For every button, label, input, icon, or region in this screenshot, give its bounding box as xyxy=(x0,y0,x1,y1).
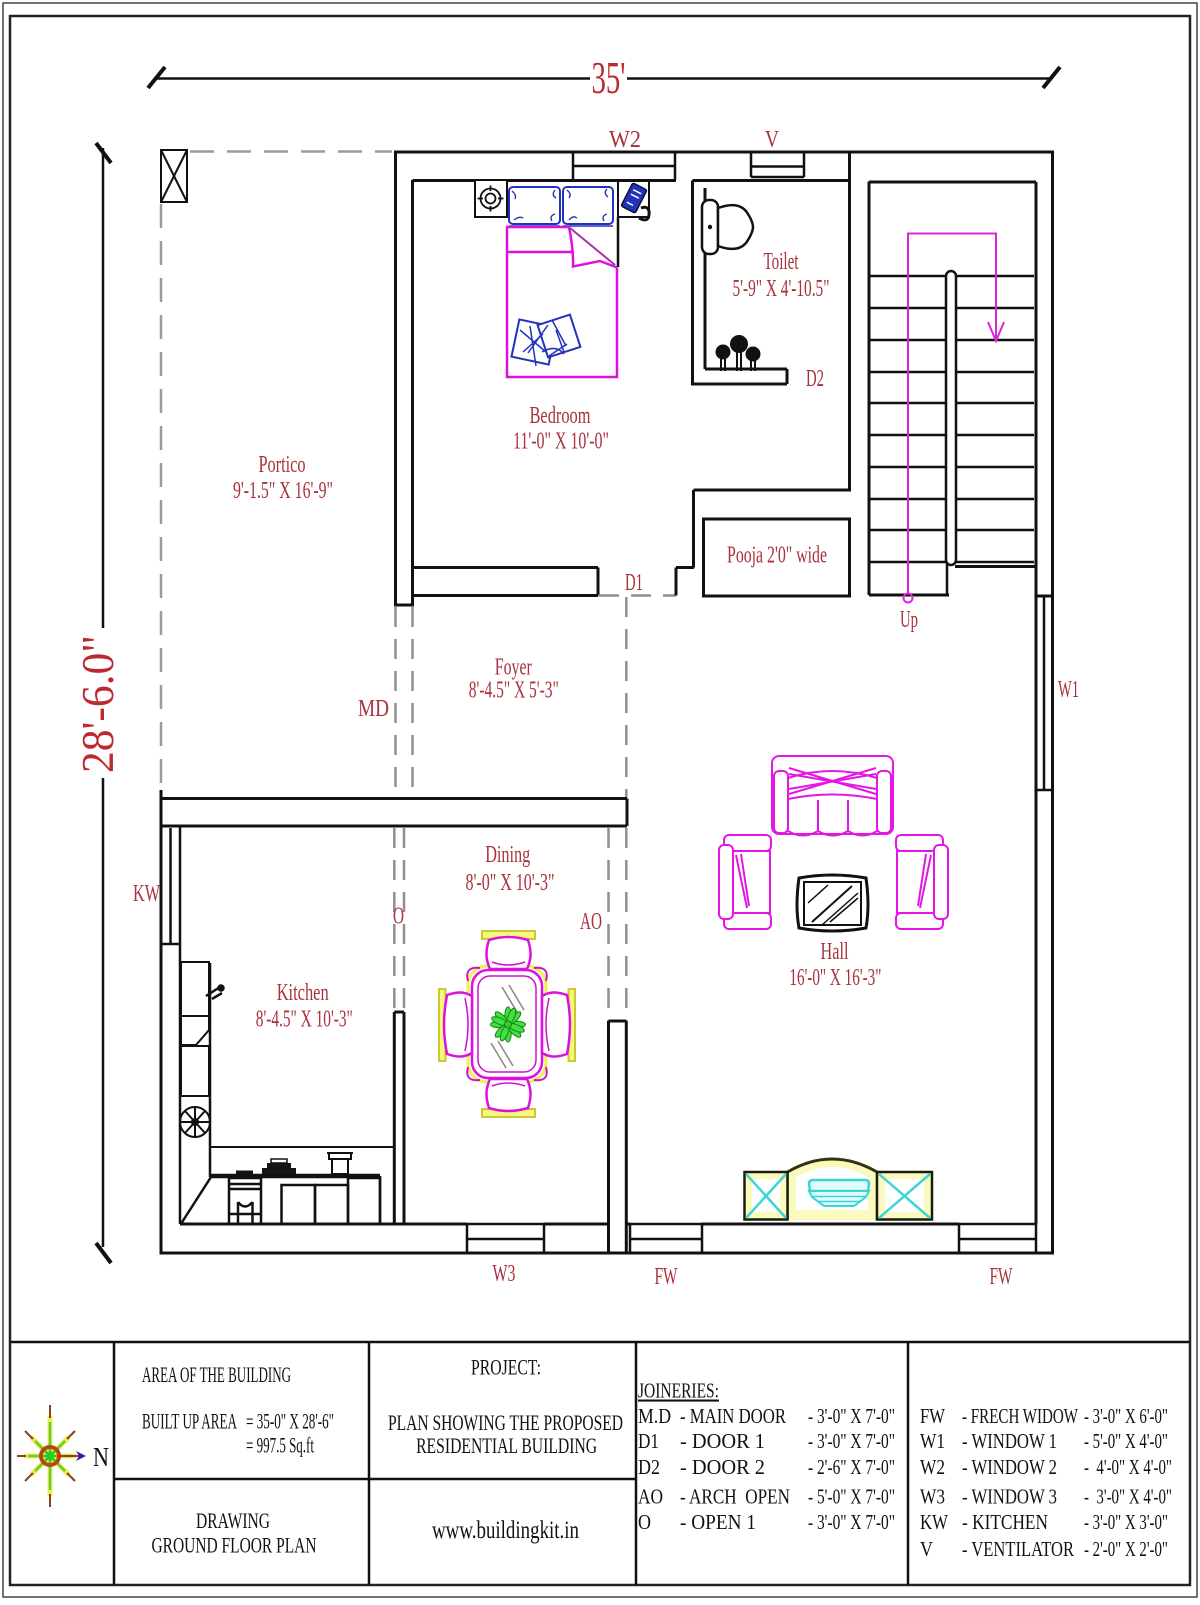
svg-text:8'-0" X 10'-3": 8'-0" X 10'-3" xyxy=(466,870,555,896)
svg-text:- ARCH OPEN: - ARCH OPEN xyxy=(680,1485,790,1509)
svg-text:- WINDOW 3: - WINDOW 3 xyxy=(962,1485,1057,1509)
svg-text:D2: D2 xyxy=(638,1455,660,1479)
svg-text:= 997.5 Sq.ft: = 997.5 Sq.ft xyxy=(246,1433,314,1458)
svg-text:28'-6.0": 28'-6.0" xyxy=(73,635,123,773)
svg-text:- MAIN DOOR: - MAIN DOOR xyxy=(680,1404,786,1428)
svg-text:KW: KW xyxy=(920,1510,948,1534)
svg-text:Toilet: Toilet xyxy=(764,249,799,275)
svg-text:= 35-0" X 28'-6": = 35-0" X 28'-6" xyxy=(246,1409,334,1434)
svg-text:- 4'-0" X 4'-0": - 4'-0" X 4'-0" xyxy=(1084,1455,1172,1479)
svg-text:Portico: Portico xyxy=(259,452,306,478)
svg-text:35': 35' xyxy=(592,53,626,103)
svg-text:M.D: M.D xyxy=(638,1404,671,1428)
svg-text:- 5'-0" X 7'-0": - 5'-0" X 7'-0" xyxy=(808,1485,895,1509)
svg-text:- WINDOW 2: - WINDOW 2 xyxy=(962,1455,1057,1479)
svg-text:BUILT UP AREA: BUILT UP AREA xyxy=(142,1409,237,1434)
svg-text:Hall: Hall xyxy=(821,939,849,965)
svg-text:AO: AO xyxy=(638,1485,663,1509)
svg-text:16'-0" X 16'-3": 16'-0" X 16'-3" xyxy=(789,965,881,991)
svg-text:9'-1.5" X 16'-9": 9'-1.5" X 16'-9" xyxy=(233,478,333,504)
svg-text:Kitchen: Kitchen xyxy=(277,980,329,1006)
svg-text:- 5'-0" X 4'-0": - 5'-0" X 4'-0" xyxy=(1084,1429,1168,1453)
svg-text:W3: W3 xyxy=(493,1261,516,1287)
svg-text:D2: D2 xyxy=(806,366,824,392)
svg-text:- 3'-0" X 4'-0": - 3'-0" X 4'-0" xyxy=(1084,1485,1172,1509)
svg-text:- 3'-0" X 7'-0": - 3'-0" X 7'-0" xyxy=(808,1429,895,1453)
svg-text:- DOOR 1: - DOOR 1 xyxy=(680,1429,765,1453)
svg-text:- 3'-0" X 6'-0": - 3'-0" X 6'-0" xyxy=(1084,1404,1168,1428)
svg-text:- DOOR 2: - DOOR 2 xyxy=(680,1455,765,1479)
svg-text:- WINDOW 1: - WINDOW 1 xyxy=(962,1429,1057,1453)
svg-text:V: V xyxy=(765,127,780,153)
svg-text:FW: FW xyxy=(990,1264,1013,1290)
svg-text:11'-0" X 10'-0": 11'-0" X 10'-0" xyxy=(513,429,609,455)
svg-text:Bedroom: Bedroom xyxy=(530,403,591,429)
svg-text:W1: W1 xyxy=(1058,677,1079,703)
svg-text:8'-4.5" X 5'-3": 8'-4.5" X 5'-3" xyxy=(469,678,559,704)
svg-text:PROJECT:: PROJECT: xyxy=(471,1355,541,1380)
svg-text:- KITCHEN: - KITCHEN xyxy=(962,1510,1048,1534)
svg-text:KW: KW xyxy=(133,881,160,907)
svg-text:GROUND FLOOR PLAN: GROUND FLOOR PLAN xyxy=(152,1533,317,1558)
svg-text:D1: D1 xyxy=(638,1429,659,1453)
svg-text:FW: FW xyxy=(655,1264,678,1290)
svg-text:W2: W2 xyxy=(920,1455,945,1479)
svg-text:W3: W3 xyxy=(920,1485,945,1509)
svg-text:- 3'-0" X 7'-0": - 3'-0" X 7'-0" xyxy=(808,1404,895,1428)
svg-text:www.buildingkit.in: www.buildingkit.in xyxy=(432,1517,579,1544)
svg-text:W1: W1 xyxy=(920,1429,945,1453)
svg-text:8'-4.5" X 10'-3": 8'-4.5" X 10'-3" xyxy=(256,1007,353,1033)
svg-text:- 2'-0" X 2'-0": - 2'-0" X 2'-0" xyxy=(1084,1537,1168,1561)
svg-text:- VENTILATOR: - VENTILATOR xyxy=(962,1537,1074,1561)
svg-text:AO: AO xyxy=(580,909,602,935)
svg-text:AREA OF THE BUILDING: AREA OF THE BUILDING xyxy=(142,1362,291,1387)
svg-text:- 2'-6" X 7'-0": - 2'-6" X 7'-0" xyxy=(808,1455,895,1479)
svg-text:Dining: Dining xyxy=(485,842,530,868)
svg-text:JOINERIES:: JOINERIES: xyxy=(638,1379,719,1403)
svg-text:Pooja 2'0" wide: Pooja 2'0" wide xyxy=(727,543,827,569)
svg-text:DRAWING: DRAWING xyxy=(196,1508,270,1533)
svg-text:MD: MD xyxy=(358,696,389,722)
svg-text:D1: D1 xyxy=(625,570,643,596)
svg-text:W2: W2 xyxy=(609,127,641,153)
svg-text:- OPEN 1: - OPEN 1 xyxy=(680,1510,756,1534)
svg-text:- 3'-0" X 7'-0": - 3'-0" X 7'-0" xyxy=(808,1510,895,1534)
svg-text:PLAN SHOWING THE PROPOSED: PLAN SHOWING THE PROPOSED xyxy=(388,1410,623,1435)
svg-text:O: O xyxy=(393,904,404,930)
svg-text:- 3'-0" X 3'-0": - 3'-0" X 3'-0" xyxy=(1084,1510,1168,1534)
svg-text:Up: Up xyxy=(900,607,918,633)
svg-text:O: O xyxy=(638,1510,651,1534)
svg-text:RESIDENTIAL BUILDING: RESIDENTIAL BUILDING xyxy=(416,1433,597,1458)
svg-text:V: V xyxy=(920,1537,933,1561)
svg-text:5'-9" X 4'-10.5": 5'-9" X 4'-10.5" xyxy=(733,276,830,302)
svg-text:- FRECH WIDOW: - FRECH WIDOW xyxy=(962,1404,1078,1428)
svg-text:N: N xyxy=(93,1442,109,1472)
svg-text:FW: FW xyxy=(920,1404,945,1428)
